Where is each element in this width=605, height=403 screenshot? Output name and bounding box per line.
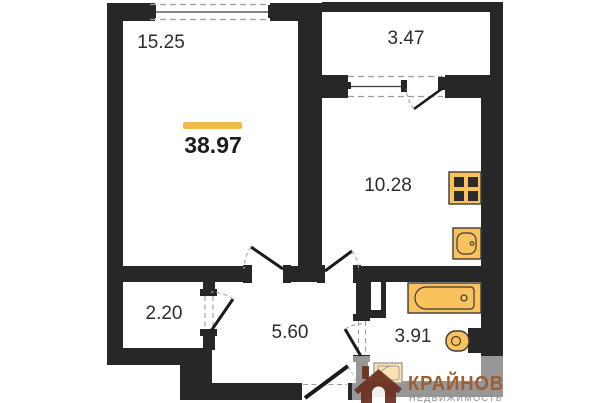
watermark: КРАЙНОВ НЕДВИЖИМОСТЬ bbox=[352, 356, 605, 403]
jamb bbox=[345, 82, 351, 89]
room-label-living: 15.25 bbox=[137, 32, 185, 53]
wall-balcony-floor-left bbox=[298, 75, 348, 98]
total-area-accent-bar bbox=[183, 122, 242, 129]
bathtub-icon bbox=[408, 283, 481, 313]
jamb bbox=[401, 80, 407, 92]
shaft-opening bbox=[371, 282, 381, 310]
wall-bottom-left bbox=[195, 383, 302, 400]
room-label-balcony: 3.47 bbox=[388, 28, 425, 49]
wall-top-left bbox=[107, 3, 155, 21]
door-balcony bbox=[406, 88, 443, 109]
jamb bbox=[200, 329, 217, 336]
stove-icon bbox=[449, 172, 481, 204]
room-label-closet: 2.20 bbox=[146, 303, 183, 324]
wall-balcony-top bbox=[322, 2, 503, 12]
watermark-subtitle: НЕДВИЖИМОСТЬ bbox=[409, 393, 503, 403]
floor-plan-drawing: 15.25 3.47 10.28 2.20 5.60 3.91 38.97 КР… bbox=[0, 0, 605, 403]
jamb bbox=[353, 314, 370, 321]
jamb bbox=[268, 5, 276, 18]
door-bathroom bbox=[345, 321, 366, 358]
room-label-kitchen: 10.28 bbox=[364, 175, 412, 196]
wall-mid-left bbox=[107, 266, 248, 282]
window-living bbox=[150, 5, 270, 20]
wall-left bbox=[107, 3, 123, 365]
jamb bbox=[283, 265, 291, 283]
wall-mid-right bbox=[357, 266, 503, 282]
total-area-label: 38.97 bbox=[184, 132, 242, 158]
floor-plan: 15.25 3.47 10.28 2.20 5.60 3.91 38.97 КР… bbox=[0, 0, 605, 403]
wall-kitchen-right bbox=[481, 98, 503, 282]
watermark-brand: КРАЙНОВ bbox=[408, 371, 504, 395]
wall-balcony-floor-right bbox=[445, 75, 503, 98]
kitchen-sink-icon bbox=[453, 228, 481, 259]
wall-divider-living-kitchen bbox=[298, 3, 322, 282]
jamb bbox=[317, 265, 325, 283]
toilet-icon bbox=[446, 328, 481, 353]
room-label-bathroom: 3.91 bbox=[395, 326, 432, 347]
window-balcony bbox=[348, 77, 443, 97]
jamb bbox=[200, 289, 217, 296]
jamb bbox=[148, 5, 156, 18]
jamb bbox=[353, 265, 361, 283]
room-label-hallway: 5.60 bbox=[272, 322, 309, 343]
door-closet bbox=[205, 292, 233, 331]
